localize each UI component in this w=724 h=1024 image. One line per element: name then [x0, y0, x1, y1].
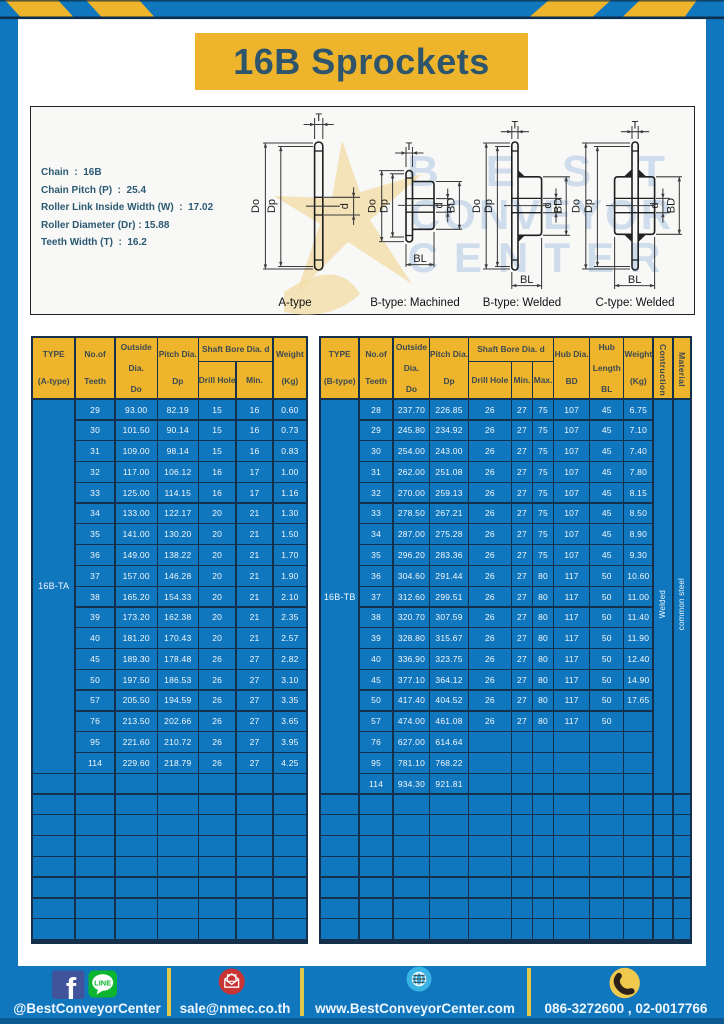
svg-text:BEST: BEST [407, 147, 695, 196]
svg-text:Dp: Dp [379, 199, 391, 213]
svg-text:BL: BL [628, 274, 641, 286]
svg-text:B-type: Machined: B-type: Machined [370, 297, 460, 309]
svg-text:A-type: A-type [278, 297, 311, 309]
svg-text:T: T [632, 120, 639, 132]
svg-text:BD: BD [665, 198, 677, 213]
svg-text:Do: Do [571, 199, 583, 213]
svg-text:T: T [406, 141, 413, 153]
svg-text:T: T [512, 120, 519, 132]
svg-text:B-type: Welded: B-type: Welded [483, 297, 561, 309]
svg-text:LINE: LINE [94, 979, 111, 988]
svg-text:d: d [339, 203, 351, 209]
svg-text:Dp: Dp [483, 199, 495, 213]
svg-text:Do: Do [250, 199, 262, 213]
svg-text:Do: Do [471, 199, 483, 213]
svg-text:C-type: Welded: C-type: Welded [595, 297, 674, 309]
svg-text:BL: BL [413, 253, 426, 265]
svg-text:T: T [315, 112, 322, 124]
svg-text:Dp: Dp [266, 199, 278, 213]
svg-text:Do: Do [367, 199, 379, 213]
svg-text:Dp: Dp [583, 199, 595, 213]
svg-text:BL: BL [520, 274, 533, 286]
svg-text:BD: BD [553, 198, 565, 213]
